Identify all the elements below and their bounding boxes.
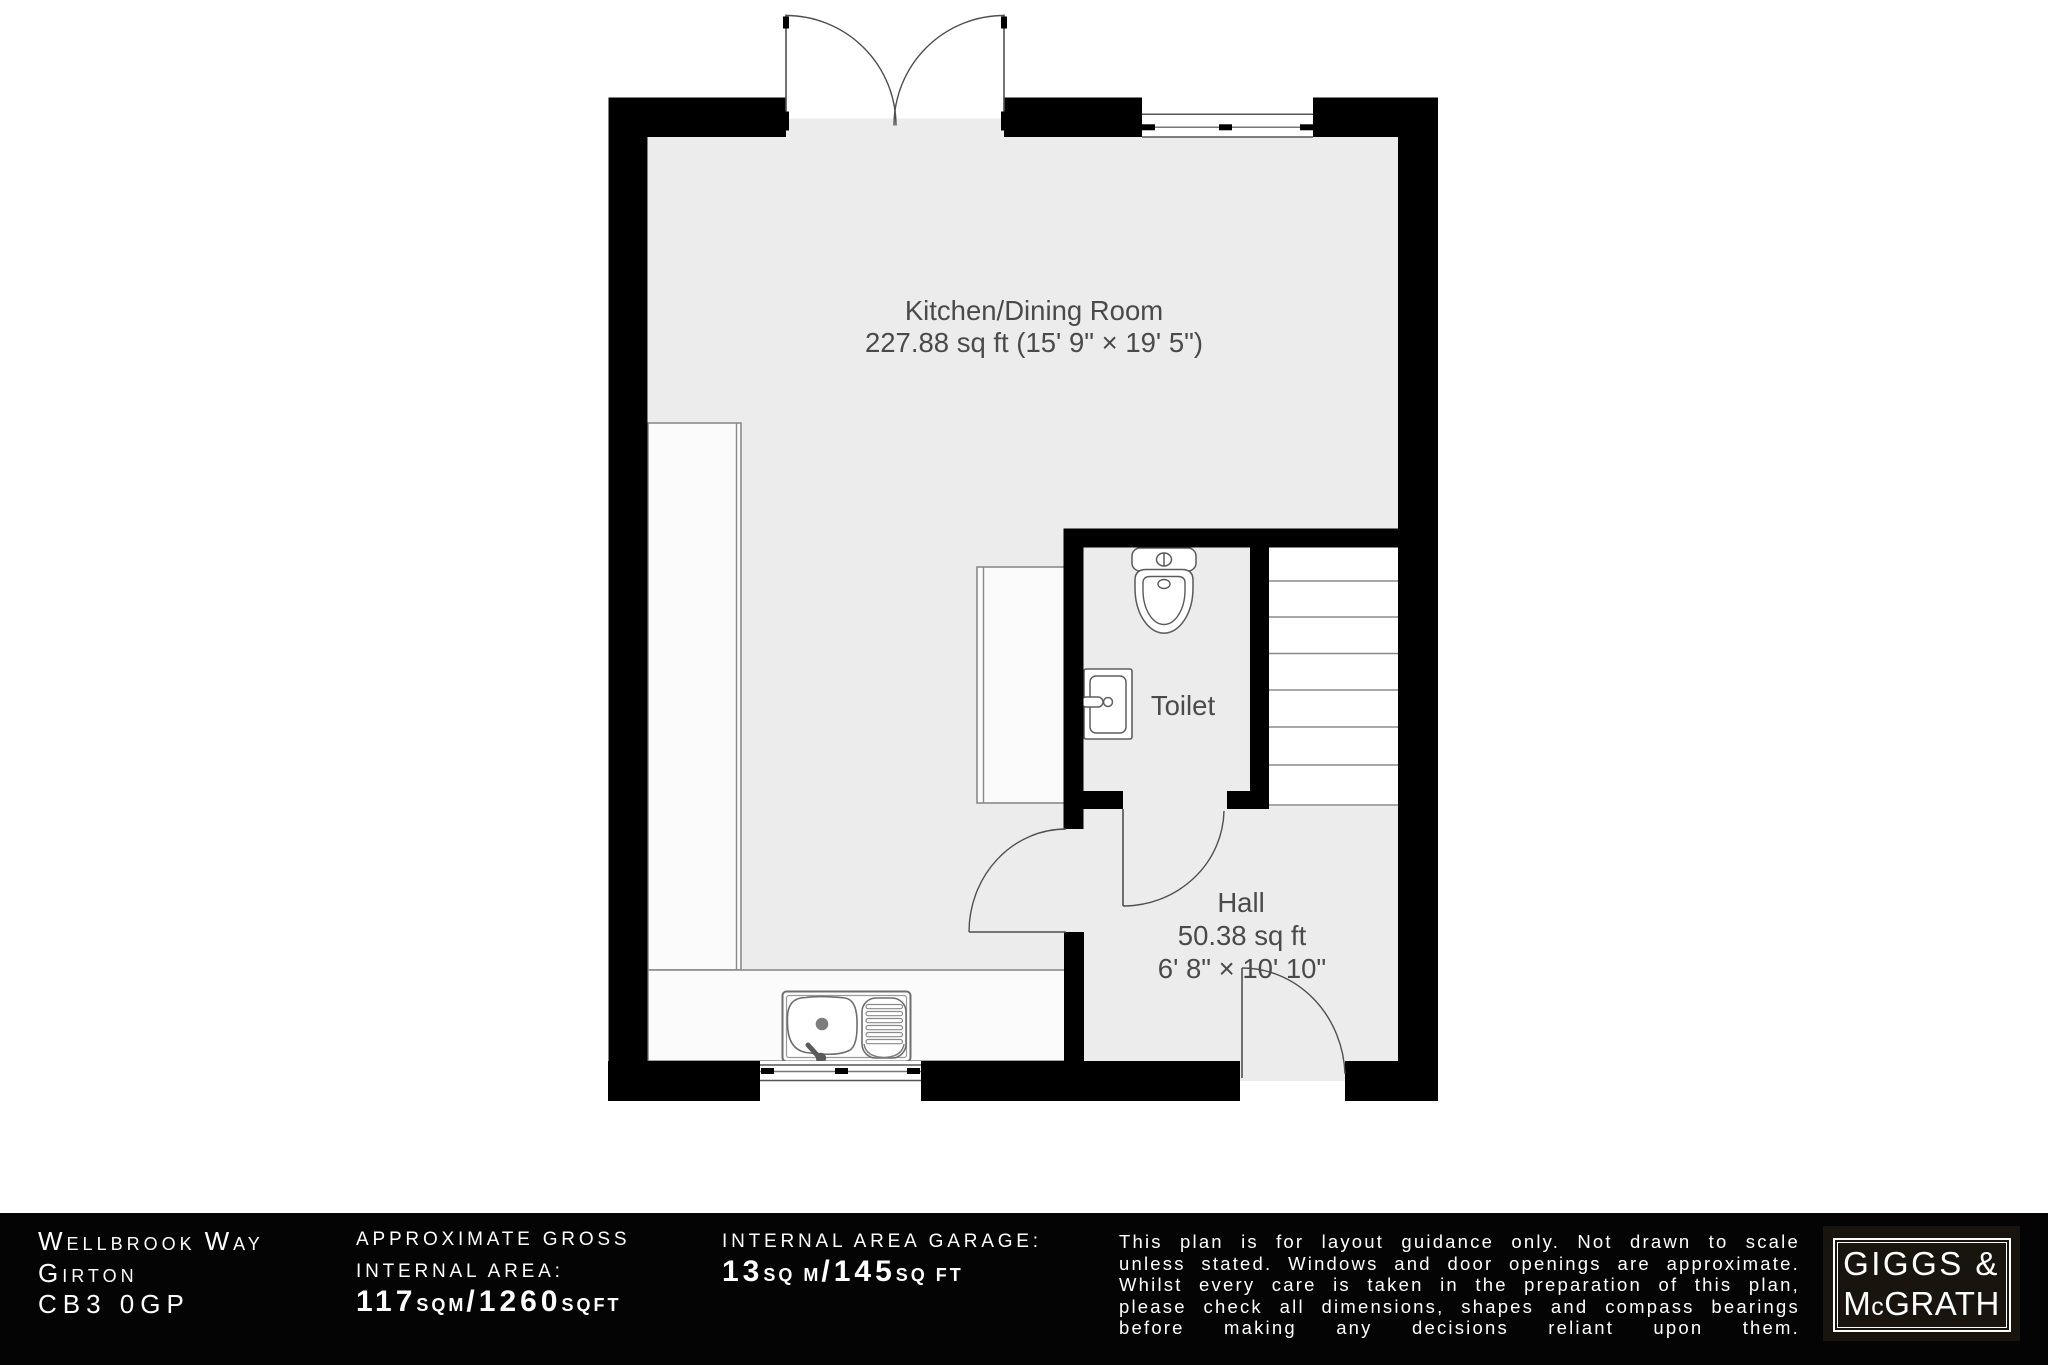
svg-text:227.88 sq ft (15' 9" × 19' 5"): 227.88 sq ft (15' 9" × 19' 5") — [865, 327, 1203, 358]
svg-text:50.38 sq ft: 50.38 sq ft — [1178, 920, 1307, 951]
svg-text:Hall: Hall — [1217, 887, 1264, 918]
svg-text:Toilet: Toilet — [1151, 690, 1216, 721]
svg-text:6' 8" × 10' 10": 6' 8" × 10' 10" — [1158, 953, 1326, 984]
svg-text:Kitchen/Dining Room: Kitchen/Dining Room — [905, 295, 1163, 326]
